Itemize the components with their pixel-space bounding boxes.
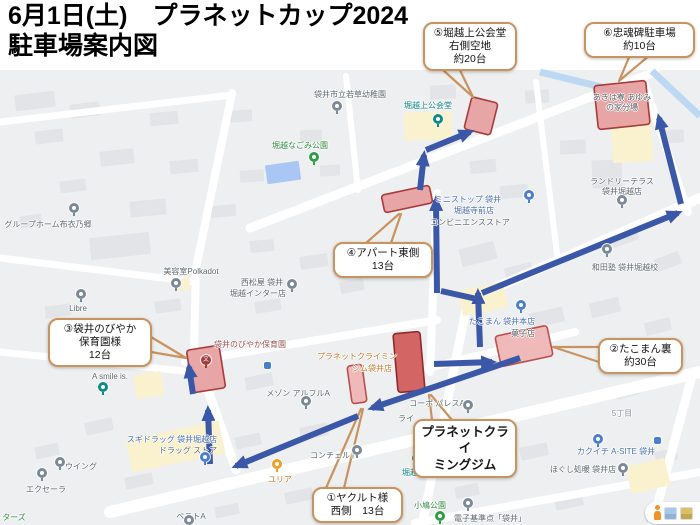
callout-line: 西側 13台 [318, 505, 397, 518]
map-label: ウイング [65, 461, 97, 472]
map-label: 和田塾 袋井堀越校 [592, 262, 658, 273]
map-label: ジム袋井店 [352, 363, 392, 374]
transit-stop-icon[interactable] [264, 362, 271, 369]
callout-line: ②たこまん裏 [604, 343, 677, 356]
callout-line: ①ヤクルト様 [318, 492, 397, 505]
map-label: 堀越インター店 [230, 288, 286, 299]
poi-pin-icon[interactable] [352, 445, 362, 458]
page-title: 6月1日(土) プラネットカップ2024 駐車場案内図 [8, 2, 408, 61]
map-label: 堀越上公会堂 [404, 100, 452, 111]
route-arrow-10 [482, 213, 678, 293]
callout-line: 13台 [339, 260, 427, 273]
route-arrow-8 [420, 155, 424, 190]
map-label: メゾン アルフルA [266, 388, 330, 399]
route-arrow-12 [434, 362, 492, 364]
poi-pin-icon[interactable] [184, 515, 194, 525]
map-thumbnail[interactable] [664, 507, 677, 520]
map-label: 小鳩公園 [414, 500, 446, 511]
poi-pin-icon[interactable] [69, 203, 79, 216]
pegman-icon[interactable] [653, 505, 661, 521]
poi-pin-icon[interactable] [463, 498, 473, 511]
map-label: ライ [398, 413, 414, 424]
map-label: コンビニエンスストア [430, 217, 510, 228]
map-label: 堀越なごみ公園 [272, 140, 328, 151]
title-line2: 駐車場案内図 [8, 32, 408, 62]
parking-area-gym [393, 331, 425, 392]
callout-parking-3: ③袋井のびやか保育園様12台 [48, 318, 152, 367]
callout-line: 12台 [54, 349, 146, 362]
poi-pin-icon[interactable] [309, 152, 319, 165]
callout-line: ⑤堀越上公会堂 [429, 27, 511, 40]
callout-line: 右側空地 [429, 40, 511, 53]
poi-pin-icon[interactable] [516, 300, 526, 313]
satellite-thumbnail[interactable] [680, 507, 693, 520]
poi-pin-icon[interactable] [618, 463, 628, 476]
route-arrow-7 [436, 200, 437, 293]
callout-line: ④アパート東側 [339, 247, 427, 260]
map-label: A smile is. [92, 372, 128, 381]
callout-line: 約30台 [604, 356, 677, 369]
map-label: エクセーラ [26, 484, 66, 495]
poi-pin-icon[interactable] [433, 114, 443, 127]
map-label: ユリア [268, 474, 292, 485]
callout-line: 約10台 [590, 40, 689, 53]
poi-pin-icon[interactable] [463, 400, 473, 413]
map-label: 西松屋 袋井 [241, 277, 283, 288]
google-maps-widget [645, 502, 700, 524]
map-label: コンチェルト [310, 450, 358, 461]
map-label: 美容室Polkadot [163, 266, 218, 277]
poi-pin-icon[interactable] [55, 457, 65, 470]
poi-pin-icon[interactable] [171, 278, 181, 291]
map-label: 袋井市立若草幼稚園 [314, 89, 386, 100]
poi-pin-icon[interactable] [76, 289, 86, 302]
callout-line: ③袋井のびやか [54, 323, 146, 336]
callout-parking-5: ⑤堀越上公会堂右側空地約20台 [423, 22, 517, 71]
map-label: 電子基準点「袋井」 [454, 513, 526, 524]
callout-line: ミングジム [419, 457, 511, 473]
callout-parking-4: ④アパート東側13台 [333, 242, 433, 278]
callout-parking-gym: プラネットクライミングジム [413, 419, 517, 478]
map-label: ほぐし処暖 袋井店 [550, 464, 616, 475]
poi-pin-icon[interactable] [593, 434, 603, 447]
map-label: Libre [69, 304, 87, 313]
callout-tail-2 [553, 347, 599, 362]
poi-pin-icon[interactable] [98, 382, 108, 395]
poi-pin-icon[interactable] [301, 396, 311, 409]
callout-line: 約20台 [429, 53, 511, 66]
callout-parking-6: ⑥忠魂碑駐車場約10台 [584, 22, 695, 58]
poi-pin-icon[interactable] [435, 511, 445, 524]
map-label: プラネットクライミン [317, 351, 397, 362]
poi-pin-icon[interactable] [287, 279, 297, 292]
map-label: グループホーム布衣乃郷 [4, 219, 91, 230]
poi-pin-icon[interactable] [617, 195, 627, 208]
map-label: カクイチ A-SITE 袋井 [577, 446, 655, 457]
map-label: 菓子店 [511, 328, 535, 339]
callout-parking-2: ②たこまん裏約30台 [598, 338, 683, 374]
callout-tail-4 [366, 214, 399, 243]
poi-pin-icon[interactable] [524, 190, 534, 203]
parking-area-4 [381, 185, 433, 213]
title-line1: 6月1日(土) プラネットカップ2024 [8, 2, 408, 32]
map-label: 堀越寺前店 [454, 205, 494, 216]
callout-line: プラネットクライ [419, 424, 511, 457]
poi-pin-icon[interactable] [272, 459, 282, 472]
map-label: コーポ パレスA [409, 398, 465, 409]
poi-pin-icon[interactable] [602, 244, 612, 257]
parking-area-5 [464, 97, 498, 136]
callout-line: 保育園様 [54, 336, 146, 349]
route-arrow-4 [189, 367, 193, 394]
callout-line: ⑥忠魂碑駐車場 [590, 27, 689, 40]
map-label: スギドラッグ 袋井堀越店 [127, 434, 217, 445]
map-label: 5丁目 [612, 408, 632, 419]
school-pin-icon[interactable]: 文 [201, 355, 211, 368]
park-pond [265, 161, 301, 185]
callout-parking-1: ①ヤクルト様西側 13台 [312, 487, 403, 523]
parking-guide-slide: 6月1日(土) プラネットカップ2024 駐車場案内図 袋井市立若草幼稚園堀越上… [0, 0, 700, 525]
poi-pin-icon[interactable] [37, 468, 47, 481]
poi-pin-icon[interactable] [200, 452, 210, 465]
poi-pin-icon[interactable] [332, 101, 342, 114]
map-label: 袋井のびやか保育園 [214, 339, 286, 350]
map-label: の家分場 [606, 102, 638, 113]
map-label: ターズ [2, 512, 26, 523]
transit-stop-icon[interactable] [654, 437, 661, 444]
map-label: たこまん 袋井本店 [469, 316, 535, 327]
map-label: ミニストップ 袋井 [435, 194, 501, 205]
